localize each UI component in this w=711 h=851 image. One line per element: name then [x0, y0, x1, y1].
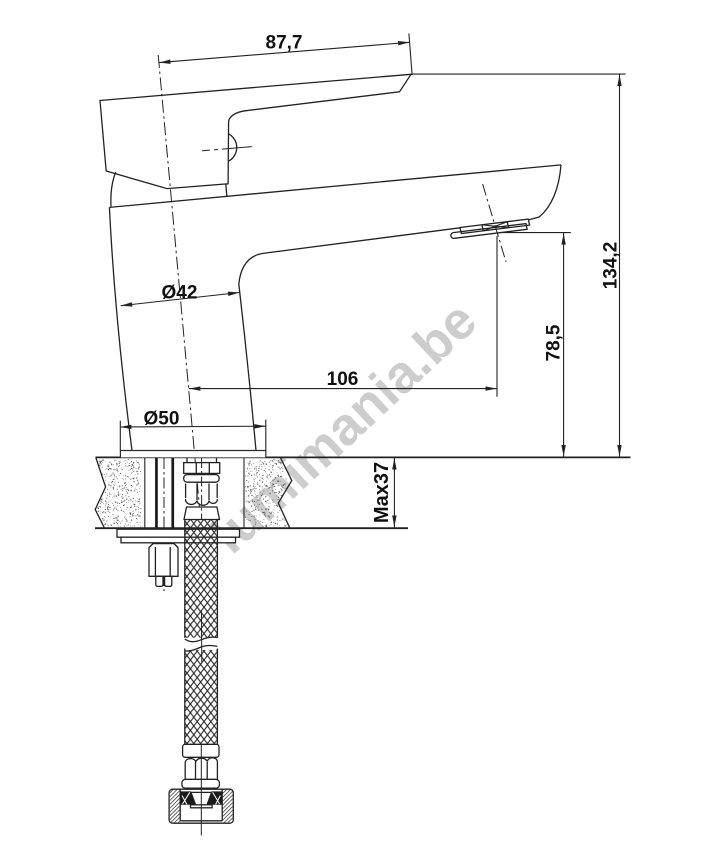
svg-text:Max37: Max37 [371, 462, 393, 523]
svg-text:134,2: 134,2 [601, 242, 622, 290]
svg-text:87,7: 87,7 [266, 33, 303, 54]
svg-text:78,5: 78,5 [544, 324, 565, 361]
svg-text:Ø42: Ø42 [162, 283, 198, 304]
svg-text:Ø50: Ø50 [144, 409, 180, 430]
svg-text:106: 106 [327, 369, 359, 390]
